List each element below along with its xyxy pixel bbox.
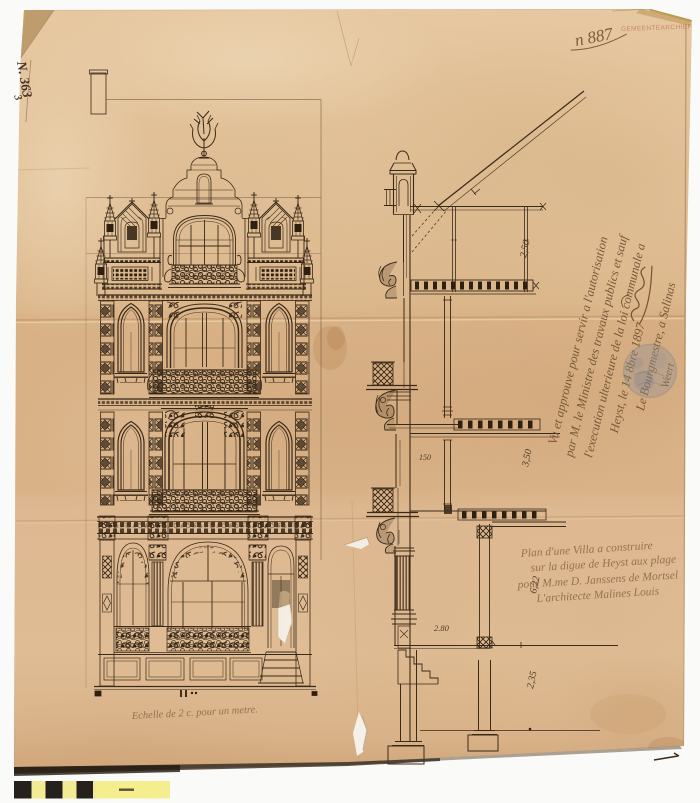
svg-text:2.80: 2.80 <box>434 623 450 633</box>
svg-text:150: 150 <box>419 453 431 462</box>
